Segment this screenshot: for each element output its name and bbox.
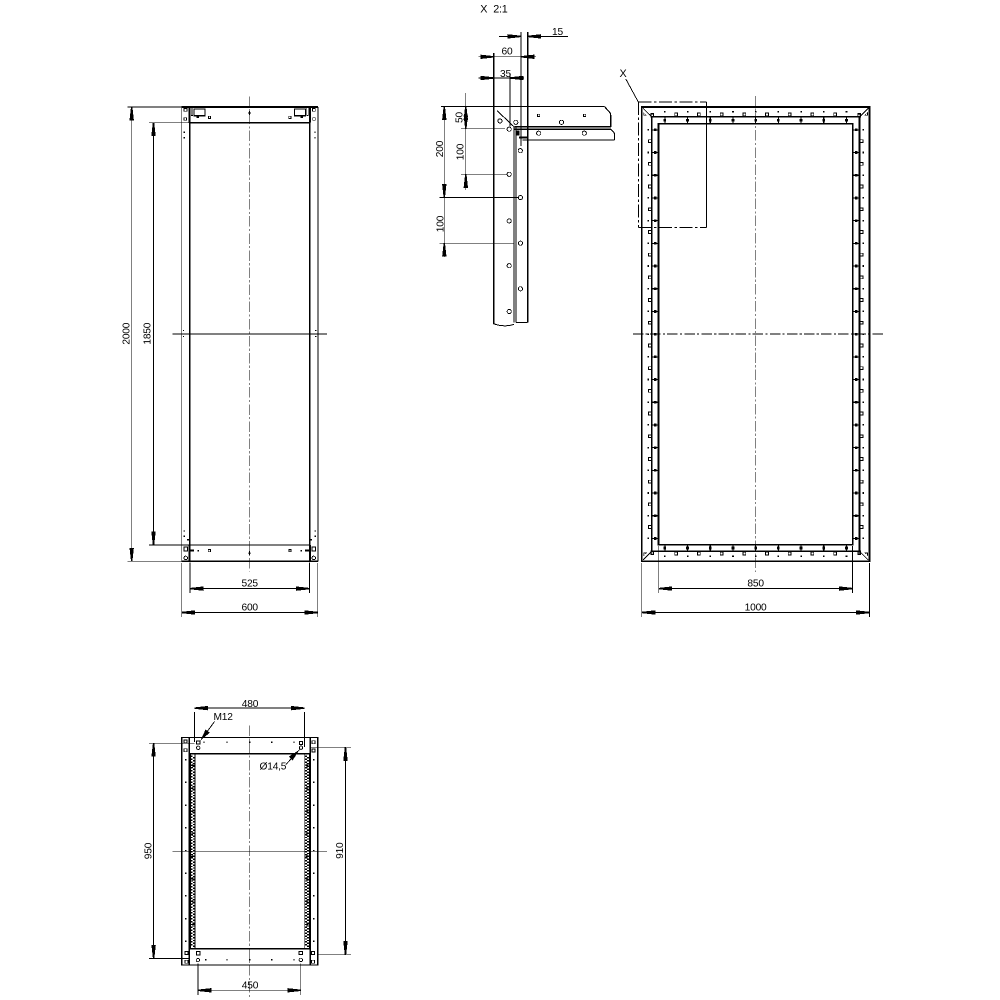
svg-text:600: 600 [241, 603, 258, 614]
svg-text:60: 60 [502, 47, 513, 58]
svg-text:1850: 1850 [143, 322, 154, 344]
svg-text:950: 950 [143, 842, 154, 859]
svg-text:2000: 2000 [122, 322, 133, 344]
svg-text:480: 480 [242, 699, 259, 710]
svg-text:35: 35 [500, 69, 511, 80]
svg-text:100: 100 [436, 215, 447, 232]
svg-text:X: X [620, 68, 627, 80]
svg-text:910: 910 [335, 842, 346, 859]
svg-text:X: X [480, 4, 487, 16]
svg-text:15: 15 [552, 27, 563, 38]
svg-text:450: 450 [242, 980, 259, 991]
svg-text:Ø14,5: Ø14,5 [260, 761, 287, 772]
svg-text:525: 525 [241, 578, 258, 589]
svg-text:850: 850 [747, 578, 764, 589]
svg-text:200: 200 [435, 140, 446, 157]
svg-text:2:1: 2:1 [493, 4, 508, 16]
svg-text:1000: 1000 [745, 603, 767, 614]
svg-text:100: 100 [455, 143, 466, 160]
svg-text:M12: M12 [214, 712, 234, 723]
svg-text:50: 50 [455, 112, 466, 123]
